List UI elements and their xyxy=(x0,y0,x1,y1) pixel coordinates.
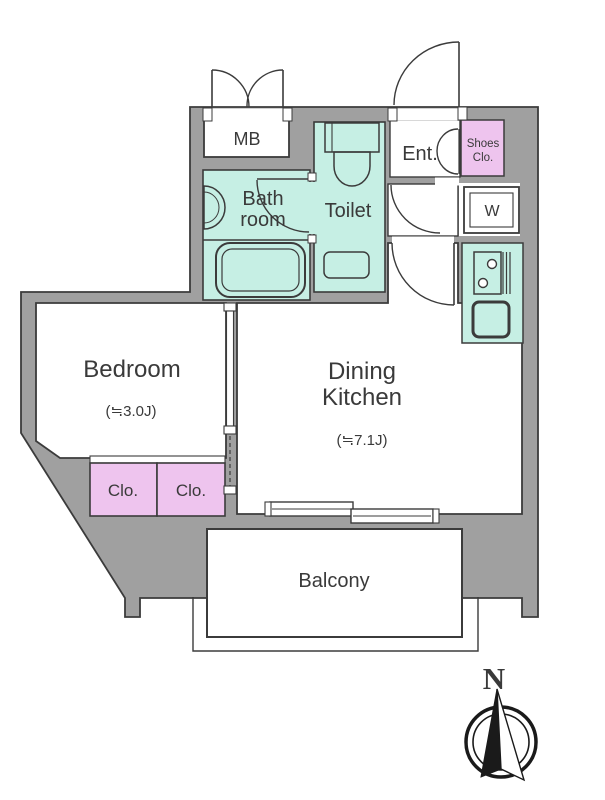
stove-burner xyxy=(488,260,497,269)
kitchen-counter xyxy=(462,243,523,343)
label-closet-right: Clo. xyxy=(176,481,206,500)
label-washer: W xyxy=(484,203,500,220)
compass-north-label: N xyxy=(483,661,505,696)
compass: N xyxy=(466,661,536,780)
entrance-door-arc xyxy=(394,42,459,105)
dk-door-opening xyxy=(392,237,454,245)
label-dk-size: (≒7.1J) xyxy=(337,432,388,449)
door-jamb xyxy=(458,107,467,120)
label-dk-2: Kitchen xyxy=(322,384,402,411)
partition-cap xyxy=(224,426,236,434)
label-closet-left: Clo. xyxy=(108,481,138,500)
floor-plan-page: N MB Bath room Toilet Ent. Shoes Clo. W … xyxy=(0,0,605,800)
bathroom-door-opening xyxy=(309,182,316,234)
door-jamb xyxy=(308,235,316,243)
stove-burner xyxy=(479,279,488,288)
label-balcony: Balcony xyxy=(298,570,369,592)
door-jamb xyxy=(308,173,316,181)
partition-door xyxy=(227,311,234,426)
label-toilet: Toilet xyxy=(325,200,372,222)
label-entrance: Ent. xyxy=(402,143,438,165)
entrance-door-opening xyxy=(396,109,459,121)
mb-door-opening xyxy=(209,109,285,121)
hall-door-opening xyxy=(435,178,459,186)
window-end-cap xyxy=(433,509,439,523)
label-bedroom: Bedroom xyxy=(83,356,180,383)
door-jamb xyxy=(203,108,212,121)
label-shoes-1: Shoes xyxy=(467,138,500,150)
partition-cap xyxy=(224,486,236,494)
compass-needle-light xyxy=(497,689,524,780)
label-dk-1: Dining xyxy=(328,358,396,385)
label-bathroom-2: room xyxy=(240,209,286,231)
floor-plan-drawing: N MB Bath room Toilet Ent. Shoes Clo. W … xyxy=(0,0,605,800)
label-bathroom-1: Bath xyxy=(242,188,283,210)
label-bedroom-size: (≒3.0J) xyxy=(106,403,157,420)
closet-track xyxy=(90,456,225,463)
door-jamb xyxy=(283,108,292,121)
label-mb: MB xyxy=(234,129,261,149)
door-jamb xyxy=(388,108,397,121)
label-shoes-2: Clo. xyxy=(473,152,493,164)
partition-cap xyxy=(224,303,236,311)
window-end-cap xyxy=(265,502,271,516)
mb-door-arc xyxy=(212,70,249,107)
mb-door-arc xyxy=(247,70,283,107)
